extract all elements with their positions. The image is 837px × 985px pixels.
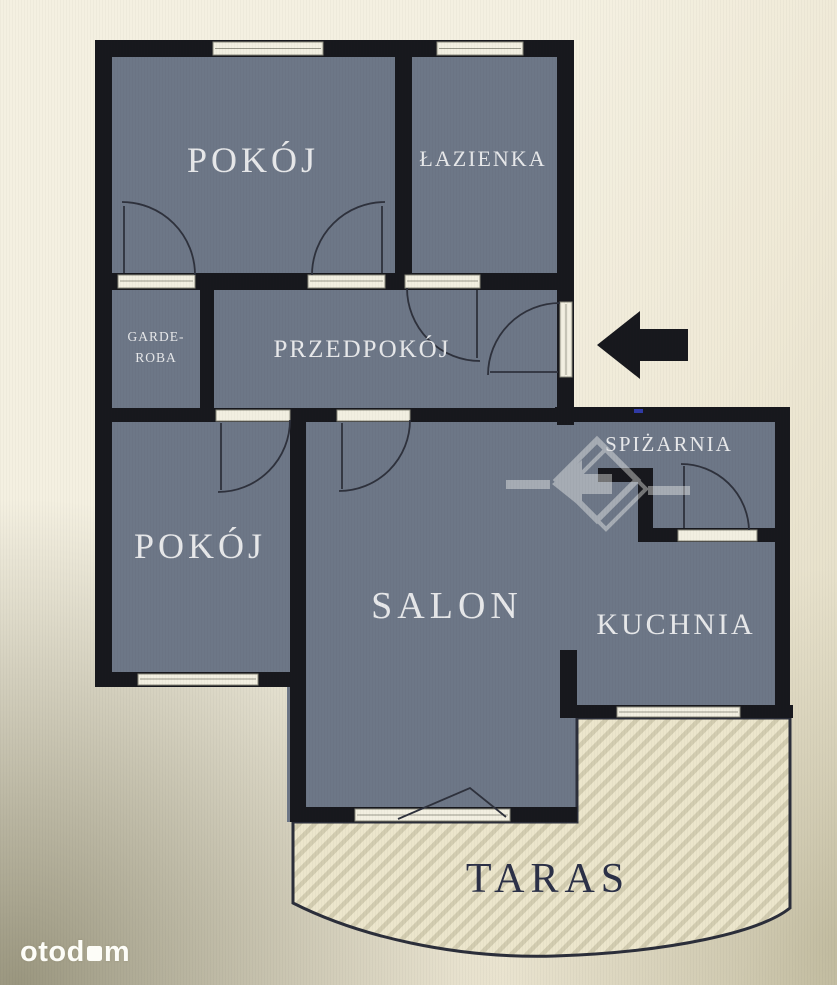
wall-salon-left xyxy=(290,408,306,822)
entry-arrow-icon xyxy=(597,311,688,379)
label-lazienka: ŁAZIENKA xyxy=(419,146,546,171)
floorplan-photo: POKÓJ ŁAZIENKA GARDE- ROBA PRZEDPOKÓJ PO… xyxy=(0,0,837,985)
wall-kuchnia-right xyxy=(775,407,790,718)
site-watermark-prefix: otod xyxy=(20,936,85,968)
floorplan-drawing: POKÓJ ŁAZIENKA GARDE- ROBA PRZEDPOKÓJ PO… xyxy=(0,0,837,985)
door-salon xyxy=(337,410,410,421)
wall-spizarnia-top xyxy=(555,407,790,422)
label-kuchnia: KUCHNIA xyxy=(596,608,755,641)
site-watermark-suffix: m xyxy=(104,936,130,968)
label-pokoj-top: POKÓJ xyxy=(187,140,319,180)
otodom-square-o-icon xyxy=(87,946,102,961)
label-przedpokoj: PRZEDPOKÓJ xyxy=(274,335,451,363)
wall-pokoj-lazienka xyxy=(395,40,412,290)
wall-left xyxy=(95,40,112,687)
label-salon: SALON xyxy=(371,585,523,627)
label-garderoba-line1: GARDE- xyxy=(128,329,185,344)
photo-artifact xyxy=(634,409,643,413)
label-spizarnia: SPIŻARNIA xyxy=(605,432,733,456)
label-garderoba-line2: ROBA xyxy=(135,350,177,365)
door-spizarnia xyxy=(678,530,757,541)
label-taras: TARAS xyxy=(466,856,630,902)
site-watermark: otodm xyxy=(20,936,130,969)
wall-garderoba-right xyxy=(200,273,214,422)
label-pokoj-left: POKÓJ xyxy=(134,526,266,566)
door-pokoj-left xyxy=(216,410,290,421)
